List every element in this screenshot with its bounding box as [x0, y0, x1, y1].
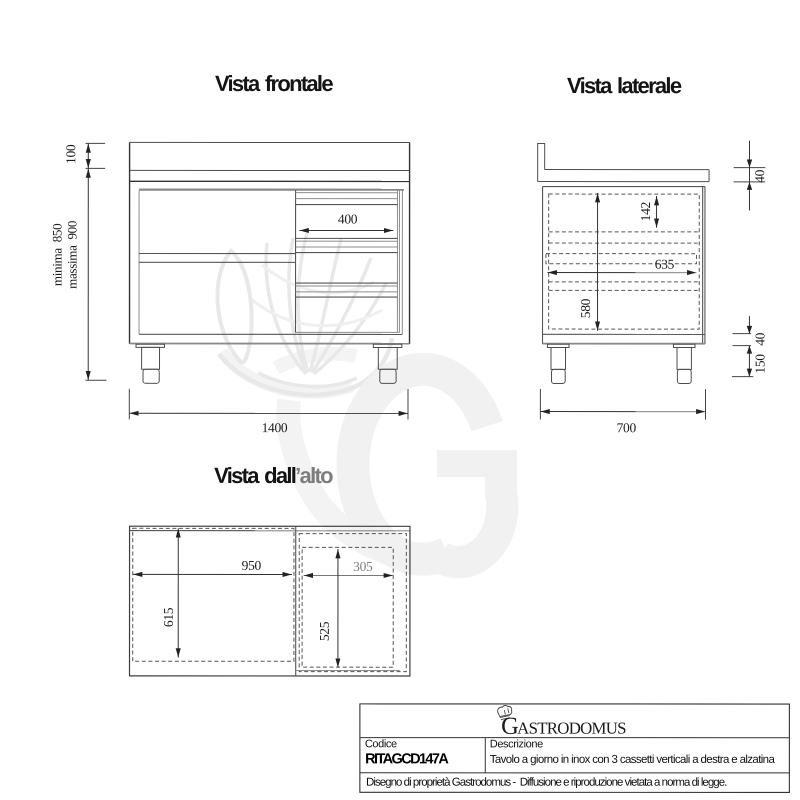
svg-text:Vista dall’alto: Vista dall’alto: [214, 463, 333, 488]
svg-text:1400: 1400: [262, 420, 288, 435]
svg-text:635: 635: [655, 257, 675, 272]
svg-text:massima 900: massima 900: [64, 221, 79, 289]
svg-text:525: 525: [317, 621, 332, 641]
svg-text:Codice: Codice: [365, 738, 397, 750]
svg-text:400: 400: [338, 211, 358, 226]
svg-text:950: 950: [242, 558, 262, 573]
svg-text:Vista laterale: Vista laterale: [567, 73, 682, 98]
svg-text:ASTRODOMUS: ASTRODOMUS: [517, 719, 626, 738]
svg-text:40: 40: [753, 332, 768, 345]
svg-text:615: 615: [161, 607, 176, 627]
svg-text:Disegno di proprietà Gastrodom: Disegno di proprietà Gastrodomus - Diffu…: [366, 777, 727, 789]
svg-text:Tavolo a giorno in inox con 3: Tavolo a giorno in inox con 3 cassetti v…: [490, 754, 776, 766]
svg-text:150: 150: [753, 354, 768, 374]
svg-text:100: 100: [63, 144, 78, 164]
svg-text:40: 40: [752, 169, 767, 182]
svg-text:580: 580: [578, 298, 593, 318]
svg-text:Descrizione: Descrizione: [490, 738, 543, 750]
svg-text:RITAGCD147A: RITAGCD147A: [365, 751, 449, 767]
svg-text:305: 305: [353, 559, 373, 574]
svg-text:Vista frontale: Vista frontale: [215, 71, 333, 96]
svg-text:142: 142: [638, 202, 653, 221]
svg-text:minima 850: minima 850: [49, 224, 64, 286]
svg-text:700: 700: [617, 420, 637, 435]
